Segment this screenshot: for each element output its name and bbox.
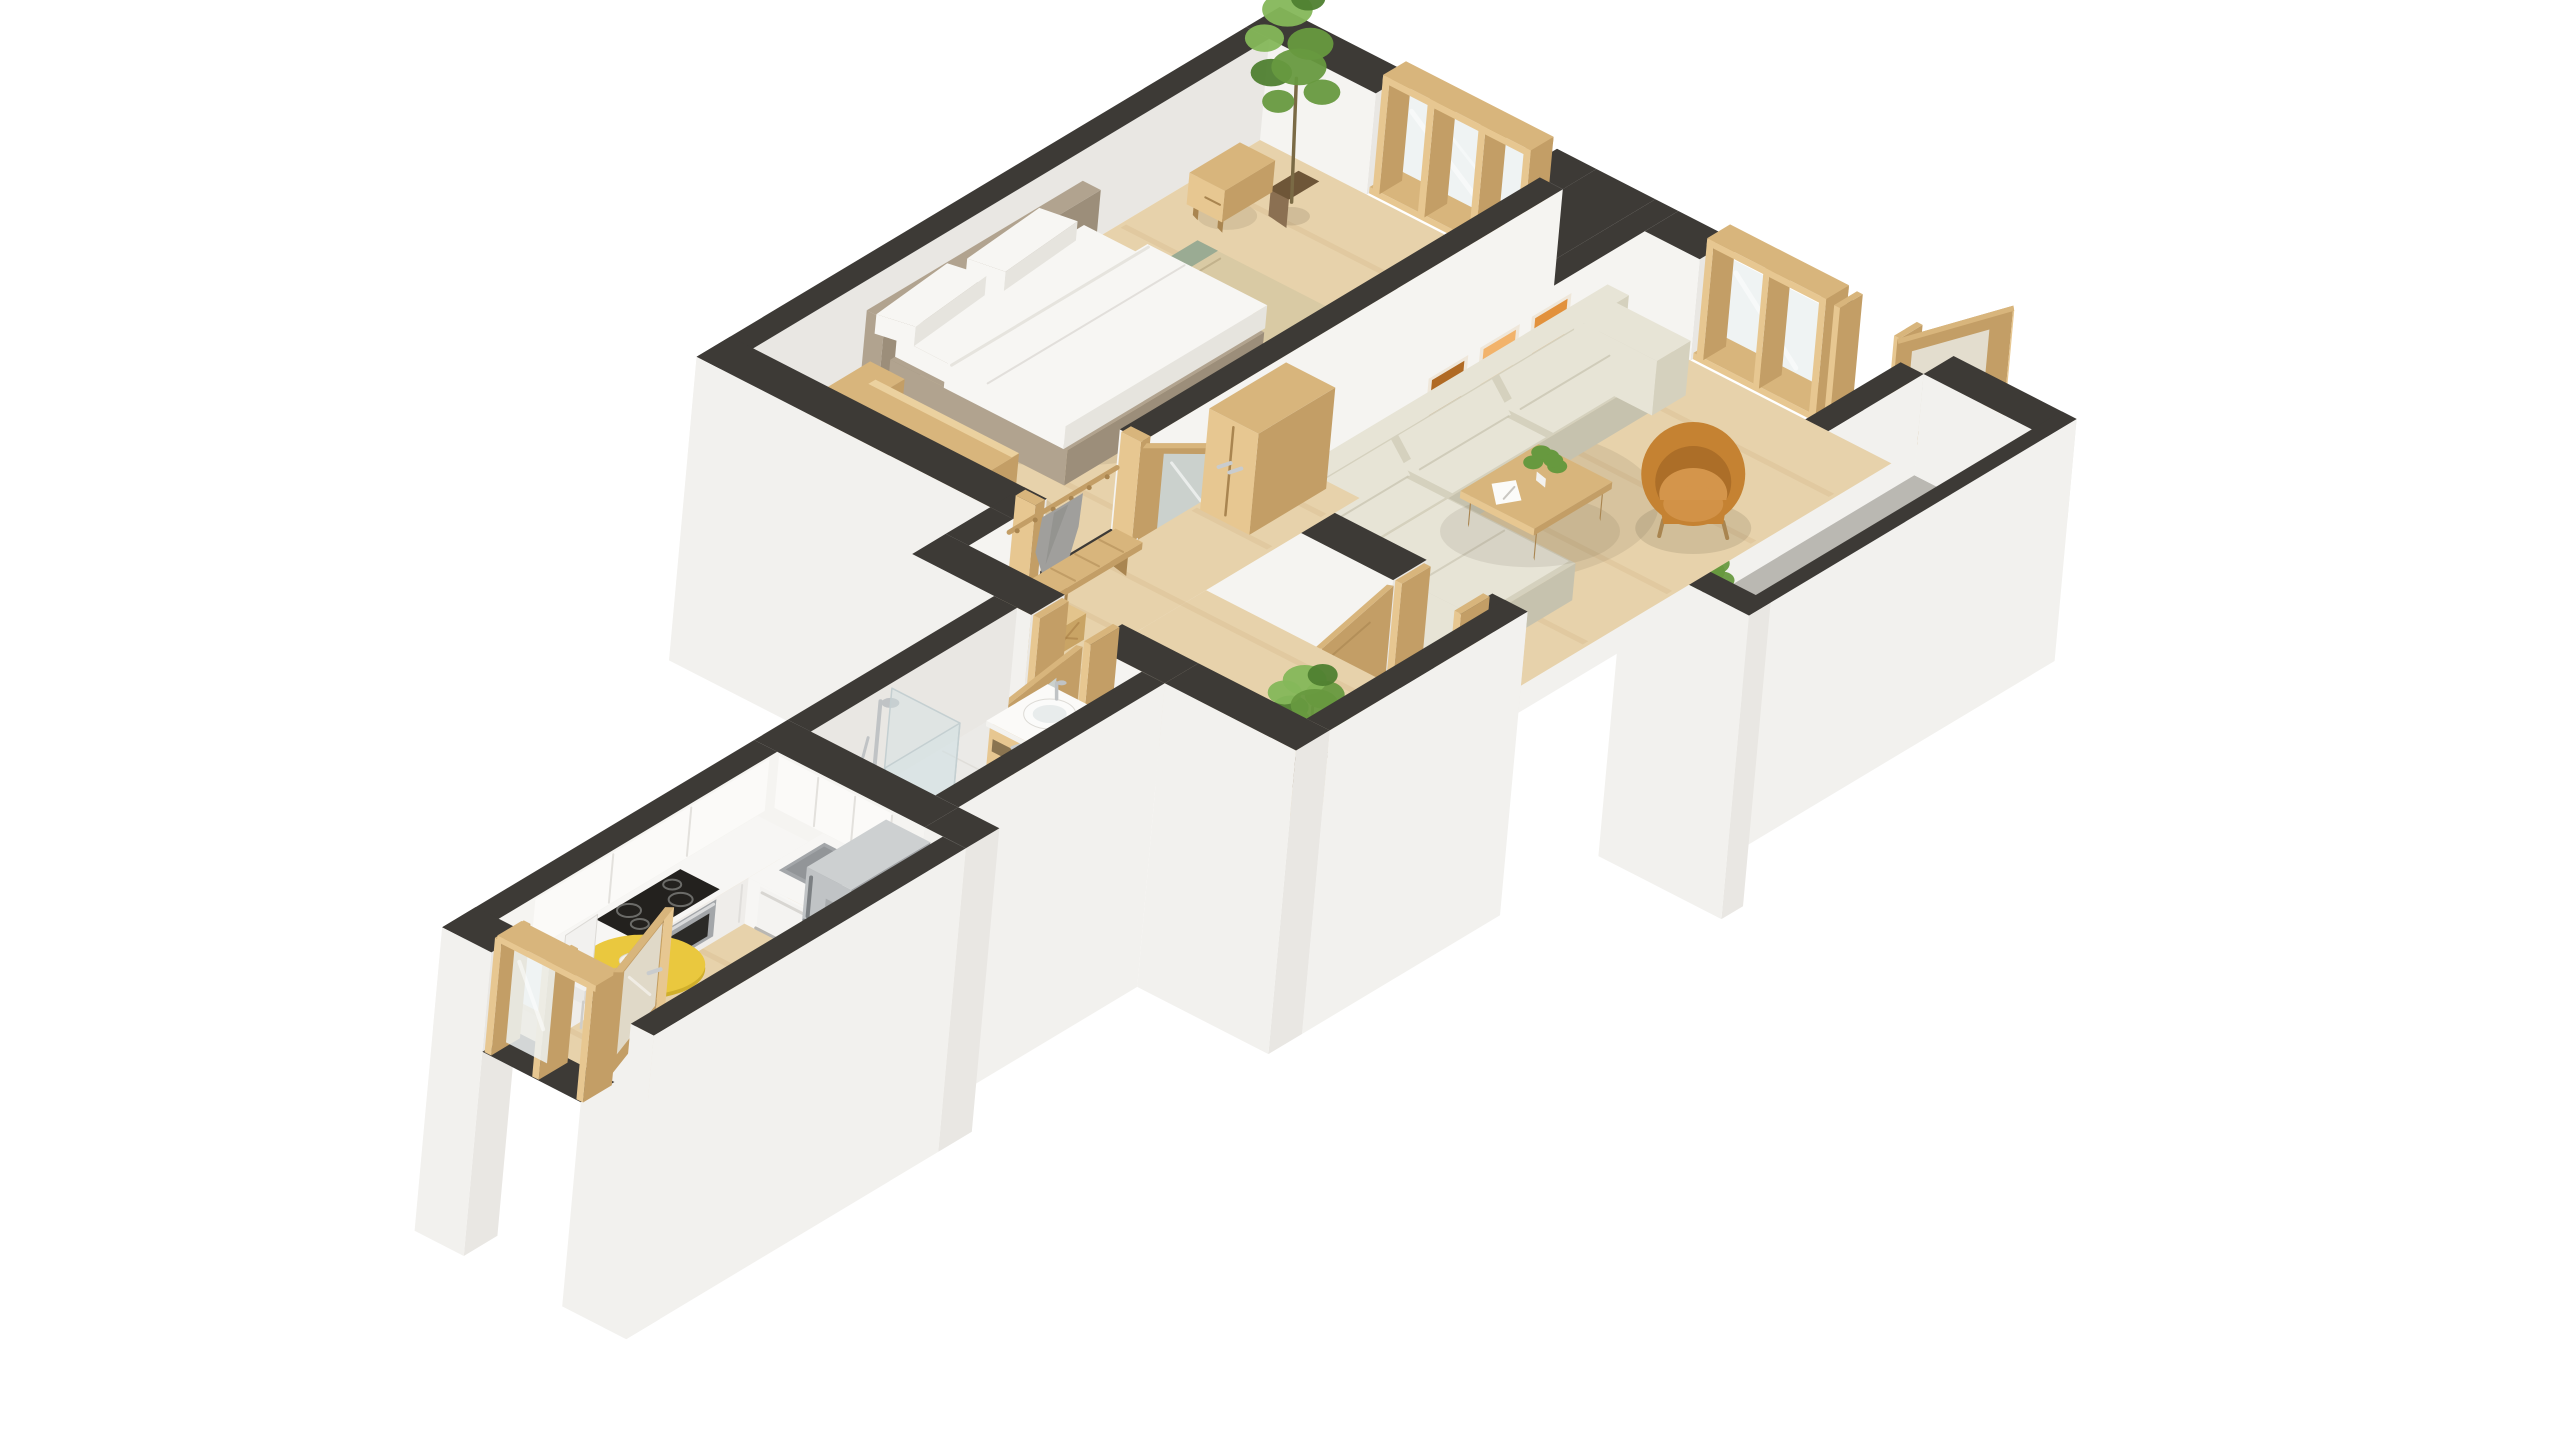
orange-armchair (1635, 422, 1751, 554)
isometric-scene (0, 0, 2560, 1440)
floorplan-render: 3D isometric floor plan of a one-bedroom… (0, 0, 2560, 1440)
